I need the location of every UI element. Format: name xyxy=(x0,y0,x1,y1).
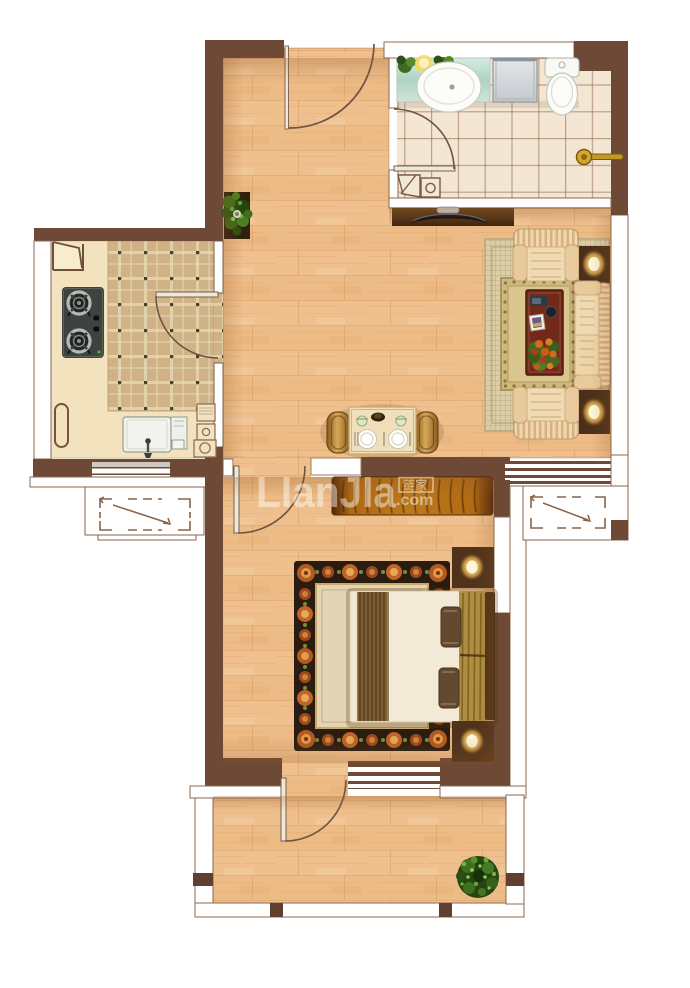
svg-text:LIanJIa: LIanJIa xyxy=(256,468,396,517)
svg-text:链家: 链家 xyxy=(403,478,429,493)
svg-text:.com: .com xyxy=(396,492,433,509)
